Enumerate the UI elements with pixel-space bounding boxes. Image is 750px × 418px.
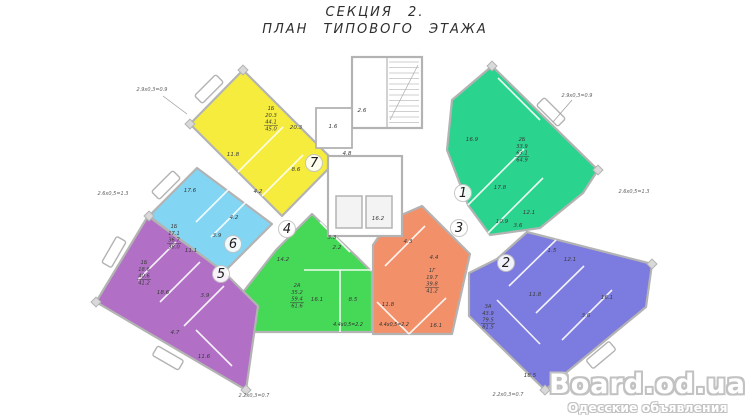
apartment-6-stats-line: 36.7 bbox=[168, 238, 180, 244]
apartment-1-stats-line: 33.9 bbox=[516, 144, 528, 150]
room-area-label: 10.9 bbox=[496, 219, 509, 225]
apartment-2-stats-line: 3А bbox=[485, 304, 492, 310]
dimension-label: 2.9x0,3=0.9 bbox=[136, 87, 167, 93]
room-area-label: 11.8 bbox=[529, 292, 542, 298]
room-area-label: 11.8 bbox=[227, 152, 240, 158]
apartment-5-stats-line: 1Б bbox=[141, 260, 148, 266]
apartment-number-2: 2 bbox=[502, 256, 510, 271]
room-area-label: 8.6 bbox=[292, 167, 301, 173]
apartment-5-stats-line: 18.6 bbox=[138, 267, 150, 273]
room-area-label: 3.9 bbox=[213, 233, 222, 239]
room-area-label: 17.6 bbox=[184, 188, 197, 194]
room-area-label: 12.1 bbox=[564, 257, 576, 263]
dimension-leader bbox=[163, 96, 187, 114]
core-area-label: 16.2 bbox=[372, 216, 385, 222]
apartment-3-stats-line: 41.2 bbox=[426, 288, 438, 294]
apartment-1-stats-line: 2Б bbox=[519, 137, 526, 143]
apartment-7-stats-line: 44.1 bbox=[265, 120, 277, 126]
apartment-7-stats-line: 20.3 bbox=[265, 113, 277, 119]
room-area-label: 14.2 bbox=[277, 257, 290, 263]
apartment-number-3: 3 bbox=[455, 221, 463, 236]
apartment-number-4: 4 bbox=[283, 222, 291, 237]
room-area-label: 11.8 bbox=[382, 302, 395, 308]
room-area-label: 20.3 bbox=[290, 125, 303, 131]
plan-title-line-2: ПЛАН ТИПОВОГО ЭТАЖА bbox=[0, 22, 750, 39]
room-area-label: 11.1 bbox=[185, 248, 197, 254]
dimension-label: 2.9x0,3=0.9 bbox=[561, 93, 592, 99]
watermark: Board.od.ua Одесские объявления bbox=[549, 371, 746, 415]
room-area-label: 18.6 bbox=[157, 290, 170, 296]
room-area-label: 3.6 bbox=[514, 223, 523, 229]
dimension-label: 2.2x0,3=0.7 bbox=[492, 392, 524, 398]
plan-title: СЕКЦИЯ 2. ПЛАН ТИПОВОГО ЭТАЖА bbox=[0, 5, 750, 39]
apartment-2-stats-line: 81.5 bbox=[482, 324, 494, 330]
room-area-label: 16.9 bbox=[466, 137, 479, 143]
dimension-label: 2.6x0,5=1.3 bbox=[97, 191, 128, 197]
apartment-3-stats-line: 19.7 bbox=[426, 275, 438, 281]
room-area-label: 3.9 bbox=[201, 293, 210, 299]
apartment-4-stats-line: 2А bbox=[294, 283, 301, 289]
room-area-label: 12.1 bbox=[523, 210, 535, 216]
room-area-label: 3.6 bbox=[582, 313, 591, 319]
lift-shaft bbox=[336, 196, 362, 228]
lift-shaft bbox=[366, 196, 392, 228]
apartment-2-area bbox=[469, 232, 652, 390]
dimension-label: 2.2x0,3=0.7 bbox=[238, 393, 270, 399]
watermark-site-name: Board.od.ua bbox=[549, 371, 746, 398]
room-area-label: 16.1 bbox=[601, 295, 613, 301]
apartment-number-7: 7 bbox=[310, 156, 319, 171]
apartment-6-stats-line: 38.0 bbox=[168, 244, 180, 250]
room-area-label: 1.5 bbox=[548, 248, 557, 254]
balcony-calc-label: 4.4x0,5=2.2 bbox=[379, 322, 409, 328]
room-area-label: 17.8 bbox=[494, 185, 507, 191]
apartment-3-stats-line: 39.8 bbox=[426, 282, 438, 288]
apartment-1-stats-line: 64.9 bbox=[516, 157, 528, 163]
room-area-label: 4.7 bbox=[171, 330, 180, 336]
apartment-number-6: 6 bbox=[229, 237, 237, 252]
apartment-5-stats-line: 41.2 bbox=[138, 280, 150, 286]
core-area-label: 2.6 bbox=[358, 108, 367, 114]
watermark-tagline: Одесские объявления bbox=[549, 400, 746, 415]
room-area-label: 4.4 bbox=[430, 255, 439, 261]
apartment-number-5: 5 bbox=[217, 267, 225, 282]
room-area-label: 3.3 bbox=[328, 235, 337, 241]
apartment-1-stats-line: 63.1 bbox=[516, 151, 528, 157]
apartment-2-stats-line: 43.9 bbox=[482, 311, 494, 317]
floor-plan-page: 16.917.810.912.13.61.512.111.816.13.618.… bbox=[0, 0, 750, 418]
core-area-label: 4.8 bbox=[343, 151, 352, 157]
apartment-7-stats-line: 1Б bbox=[268, 106, 275, 112]
core-area-label: 1.6 bbox=[329, 124, 338, 130]
floor-plan-drawing: 16.917.810.912.13.61.512.111.816.13.618.… bbox=[0, 0, 750, 418]
room-area-label: 4.3 bbox=[404, 239, 413, 245]
apartment-5-stats-line: 40.6 bbox=[138, 274, 150, 280]
apartment-7-stats-line: 45.0 bbox=[265, 126, 277, 132]
room-area-label: 18.5 bbox=[524, 373, 537, 379]
apartment-number-1: 1 bbox=[459, 186, 467, 201]
dimension-label: 2.6x0,5=1.3 bbox=[618, 189, 649, 195]
room-area-label: 11.6 bbox=[198, 354, 211, 360]
apartment-2-stats-line: 79.5 bbox=[482, 318, 494, 324]
plan-title-line-1: СЕКЦИЯ 2. bbox=[0, 5, 750, 22]
apartment-4-stats-line: 61.6 bbox=[291, 303, 303, 309]
apartment-6-stats-line: 1Б bbox=[171, 224, 178, 230]
room-area-label: 4.2 bbox=[230, 215, 239, 221]
room-area-label: 8.5 bbox=[349, 297, 358, 303]
apartment-4-stats-line: 59.4 bbox=[291, 297, 303, 303]
apartment-4-stats-line: 35.2 bbox=[291, 290, 303, 296]
balcony-calc-label: 4.4x0,5=2.2 bbox=[333, 322, 363, 328]
room-area-label: 2.2 bbox=[333, 245, 342, 251]
apartment-3-stats-line: 1Г bbox=[429, 268, 436, 274]
room-area-label: 16.1 bbox=[430, 323, 442, 329]
room-area-label: 16.1 bbox=[311, 297, 323, 303]
room-area-label: 4.2 bbox=[254, 189, 263, 195]
apartment-6-stats-line: 17.1 bbox=[168, 231, 180, 237]
